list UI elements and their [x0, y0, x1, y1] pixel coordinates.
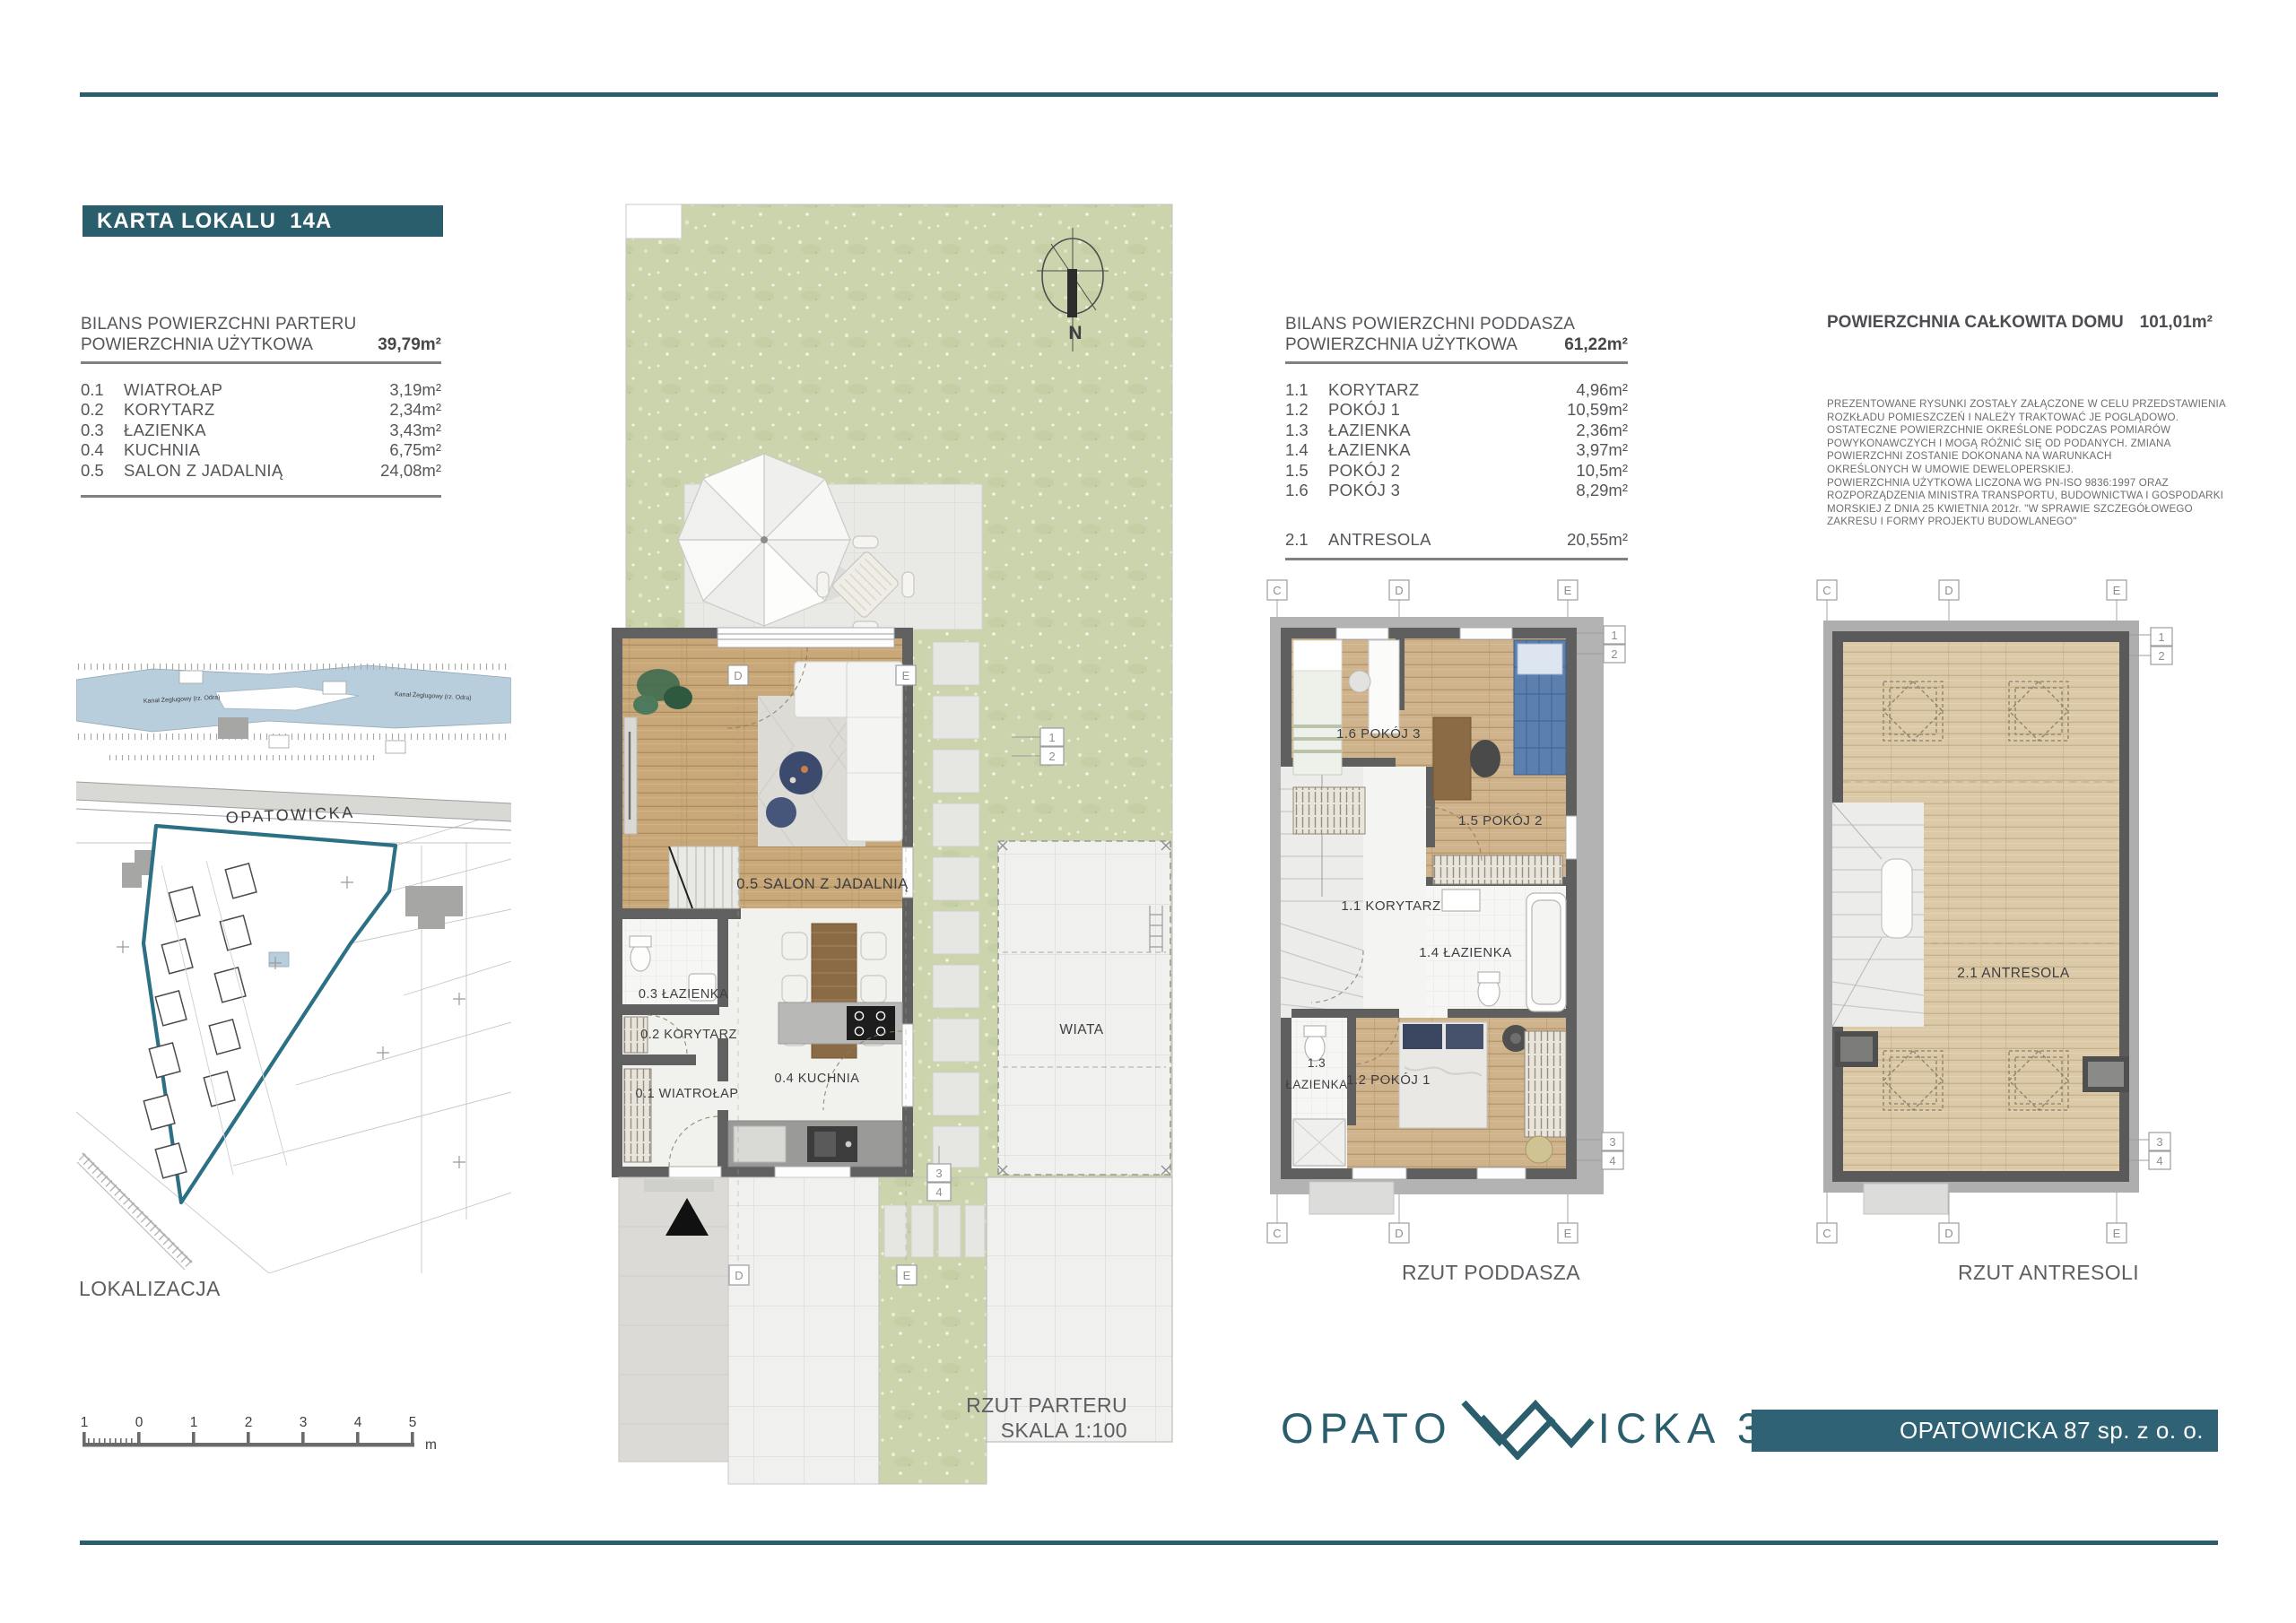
opatowicka-logo: OPATO ICKA 3.0 — [1281, 1395, 1814, 1460]
stairs — [669, 846, 739, 908]
svg-text:E: E — [1564, 1227, 1572, 1240]
label-kuchnia: 0.4 KUCHNIA — [775, 1072, 860, 1086]
table-row: 1.2POKÓJ 110,59m² — [1285, 400, 1628, 420]
svg-text:D: D — [1395, 1227, 1403, 1240]
map-caption: LOKALIZACJA — [79, 1277, 221, 1301]
attic-floor-plan: C D E — [1263, 574, 1631, 1291]
svg-text:1: 1 — [81, 1415, 89, 1430]
svg-text:2: 2 — [1048, 750, 1055, 763]
north-needle — [1067, 269, 1077, 317]
korytarz-floor — [1363, 767, 1426, 1018]
label-wiata: WIATA — [1059, 1022, 1103, 1037]
umbrella-icon — [678, 454, 852, 626]
table-row: 0.3ŁAZIENKA3,43m² — [81, 421, 441, 440]
scale-unit: m — [425, 1437, 437, 1453]
grid-heads-top: C D E — [1267, 580, 1578, 617]
svg-text:E: E — [2113, 1227, 2121, 1240]
svg-text:1: 1 — [1048, 731, 1055, 744]
table-row: 1.3ŁAZIENKA2,36m² — [1285, 421, 1628, 440]
garden-corner-notch — [626, 204, 682, 239]
scale-numbers: 1 0 1 2 3 4 5 — [81, 1415, 417, 1430]
location-map: Kanał Żeglugowy (rz. Odra) Kanał Żeglugo… — [76, 659, 511, 1273]
label-korytarz: 0.2 KORYTARZ — [640, 1028, 737, 1042]
total-area-row: POWIERZCHNIA CAŁKOWITA DOMU 101,01m² — [1827, 313, 2213, 333]
bilans-poddasza-table: BILANS POWIERZCHNI PODDASZA POWIERZCHNIA… — [1285, 314, 1628, 560]
label-salon: 0.5 SALON Z JADALNIĄ — [736, 876, 909, 892]
table-row: 0.1WIATROŁAP3,19m² — [81, 380, 441, 400]
label-pokoj2: 1.5 POKÓJ 2 — [1458, 813, 1543, 829]
label-pokoj1: 1.2 POKÓJ 1 — [1346, 1072, 1431, 1088]
table-row: 1.4ŁAZIENKA3,97m² — [1285, 440, 1628, 460]
label-wiatrolap: 0.1 WIATROŁAP — [635, 1087, 738, 1101]
svg-text:D: D — [735, 1269, 743, 1282]
attic-structure — [1270, 617, 1604, 1214]
scale-bar: 1 0 1 2 3 4 5 m — [77, 1413, 449, 1454]
parter-caption-line2: SKALA 1:100 — [900, 1419, 1127, 1443]
bilans-poddasza-subtitle: POWIERZCHNIA UŻYTKOWA — [1285, 334, 1518, 355]
svg-text:D: D — [1944, 584, 1952, 597]
svg-text:E: E — [902, 669, 910, 682]
svg-text:1: 1 — [1611, 629, 1617, 642]
label-lazienka14: 1.4 ŁAZIENKA — [1419, 945, 1512, 960]
grid-heads-top: C D E — [1817, 580, 2126, 621]
company-name: OPATOWICKA 87 sp. z o. o. — [1900, 1417, 2218, 1445]
svg-text:2: 2 — [245, 1415, 253, 1430]
minor-ticks — [88, 1438, 133, 1445]
svg-text:E: E — [2113, 584, 2121, 597]
compass-north-label: N — [1068, 323, 1082, 343]
svg-text:C: C — [1822, 1227, 1831, 1240]
total-area-value: 101,01m² — [2140, 313, 2213, 333]
svg-text:4: 4 — [935, 1185, 942, 1199]
karta-lokalu-page: KARTA LOKALU 14A BILANS POWIERZCHNI PART… — [0, 0, 2296, 1623]
svg-text:D: D — [1395, 584, 1403, 597]
karta-lokalu-header: KARTA LOKALU 14A — [83, 205, 443, 237]
svg-text:C: C — [1273, 584, 1281, 597]
coffee-table — [766, 797, 796, 828]
svg-text:E: E — [903, 1269, 911, 1282]
table-row: 0.2KORYTARZ2,34m² — [81, 400, 441, 420]
svg-text:2: 2 — [1611, 647, 1617, 661]
svg-text:3: 3 — [2156, 1135, 2162, 1149]
antresola-caption: RZUT ANTRESOLI — [1901, 1261, 2139, 1285]
chimney-block — [1309, 1182, 1394, 1214]
svg-text:4: 4 — [2156, 1154, 2162, 1167]
top-rule — [80, 92, 2218, 97]
ground-floor-site-plan: N — [606, 199, 1180, 1490]
svg-text:D: D — [1944, 1227, 1952, 1240]
divider — [81, 361, 441, 364]
total-area-label: POWIERZCHNIA CAŁKOWITA DOMU — [1827, 313, 2124, 333]
bilans-poddasza-title: BILANS POWIERZCHNI PODDASZA — [1285, 314, 1628, 334]
table-row: 1.1KORYTARZ4,96m² — [1285, 380, 1628, 400]
svg-text:D: D — [734, 669, 742, 682]
label-lazienka13-no: 1.3 — [1308, 1056, 1326, 1070]
stairs — [1832, 803, 1924, 1027]
label-korytarz: 1.1 KORYTARZ — [1341, 898, 1440, 914]
table-row: 1.5POKÓJ 210,5m² — [1285, 461, 1628, 481]
wiata-area — [998, 841, 1170, 1175]
label-lazienka: 0.3 ŁAZIENKA — [639, 987, 728, 1002]
svg-text:4: 4 — [354, 1415, 362, 1430]
svg-text:3: 3 — [935, 1167, 942, 1180]
table-row-antresola: 2.1ANTRESOLA20,55m² — [1285, 530, 1628, 550]
mezzanine-structure — [1823, 621, 2139, 1214]
svg-text:4: 4 — [1609, 1154, 1615, 1167]
divider — [1285, 361, 1628, 364]
label-antresola: 2.1 ANTRESOLA — [1957, 966, 2070, 981]
logo-zigzag-icon — [1460, 1395, 1595, 1460]
label-pokoj3: 1.6 POKÓJ 3 — [1336, 726, 1421, 742]
mezzanine-floor-plan: C D E — [1816, 574, 2184, 1291]
legal-disclaimer: PREZENTOWANE RYSUNKI ZOSTAŁY ZAŁĄCZONE W… — [1827, 398, 2256, 529]
table-row: 1.6POKÓJ 38,29m² — [1285, 481, 1628, 500]
table-row: 0.5SALON Z JADALNIĄ24,08m² — [81, 461, 441, 481]
parter-caption-line1: RZUT PARTERU — [900, 1393, 1127, 1418]
bilans-poddasza-total-row: POWIERZCHNIA UŻYTKOWA 61,22m² — [1285, 334, 1628, 355]
highlighted-unit — [269, 952, 289, 967]
wardrobe — [624, 1069, 651, 1162]
chimney-block — [1864, 1184, 1948, 1214]
bilans-parteru-subtitle: POWIERZCHNIA UŻYTKOWA — [81, 334, 313, 355]
svg-text:3: 3 — [300, 1415, 308, 1430]
svg-text:C: C — [1273, 1227, 1281, 1240]
svg-text:0: 0 — [135, 1415, 143, 1430]
logo-text-left: OPATO — [1281, 1403, 1453, 1453]
svg-text:3: 3 — [1609, 1135, 1615, 1149]
coffee-table — [779, 751, 822, 794]
svg-text:1: 1 — [190, 1415, 198, 1430]
svg-text:1: 1 — [2158, 630, 2164, 644]
table-row: 0.4KUCHNIA6,75m² — [81, 440, 441, 460]
divider — [81, 495, 441, 498]
divider — [1285, 558, 1628, 560]
bilans-parteru-table: BILANS POWIERZCHNI PARTERU POWIERZCHNIA … — [81, 314, 441, 498]
svg-text:C: C — [1822, 584, 1831, 597]
bilans-poddasza-total: 61,22m² — [1564, 334, 1628, 355]
poddasze-caption: RZUT PODDASZA — [1345, 1261, 1580, 1285]
svg-text:E: E — [1564, 584, 1572, 597]
page-title: KARTA LOKALU 14A — [83, 209, 332, 234]
label-lazienka13: ŁAZIENKA — [1285, 1078, 1347, 1091]
svg-text:2: 2 — [2158, 649, 2164, 663]
cooktop — [847, 1006, 895, 1040]
bilans-parteru-title: BILANS POWIERZCHNI PARTERU — [81, 314, 441, 334]
svg-text:5: 5 — [409, 1415, 417, 1430]
bilans-parteru-total: 39,79m² — [378, 334, 441, 355]
bilans-parteru-total-row: POWIERZCHNIA UŻYTKOWA 39,79m² — [81, 334, 441, 355]
bottom-rule — [80, 1541, 2218, 1545]
company-box: OPATOWICKA 87 sp. z o. o. — [1752, 1410, 2218, 1452]
